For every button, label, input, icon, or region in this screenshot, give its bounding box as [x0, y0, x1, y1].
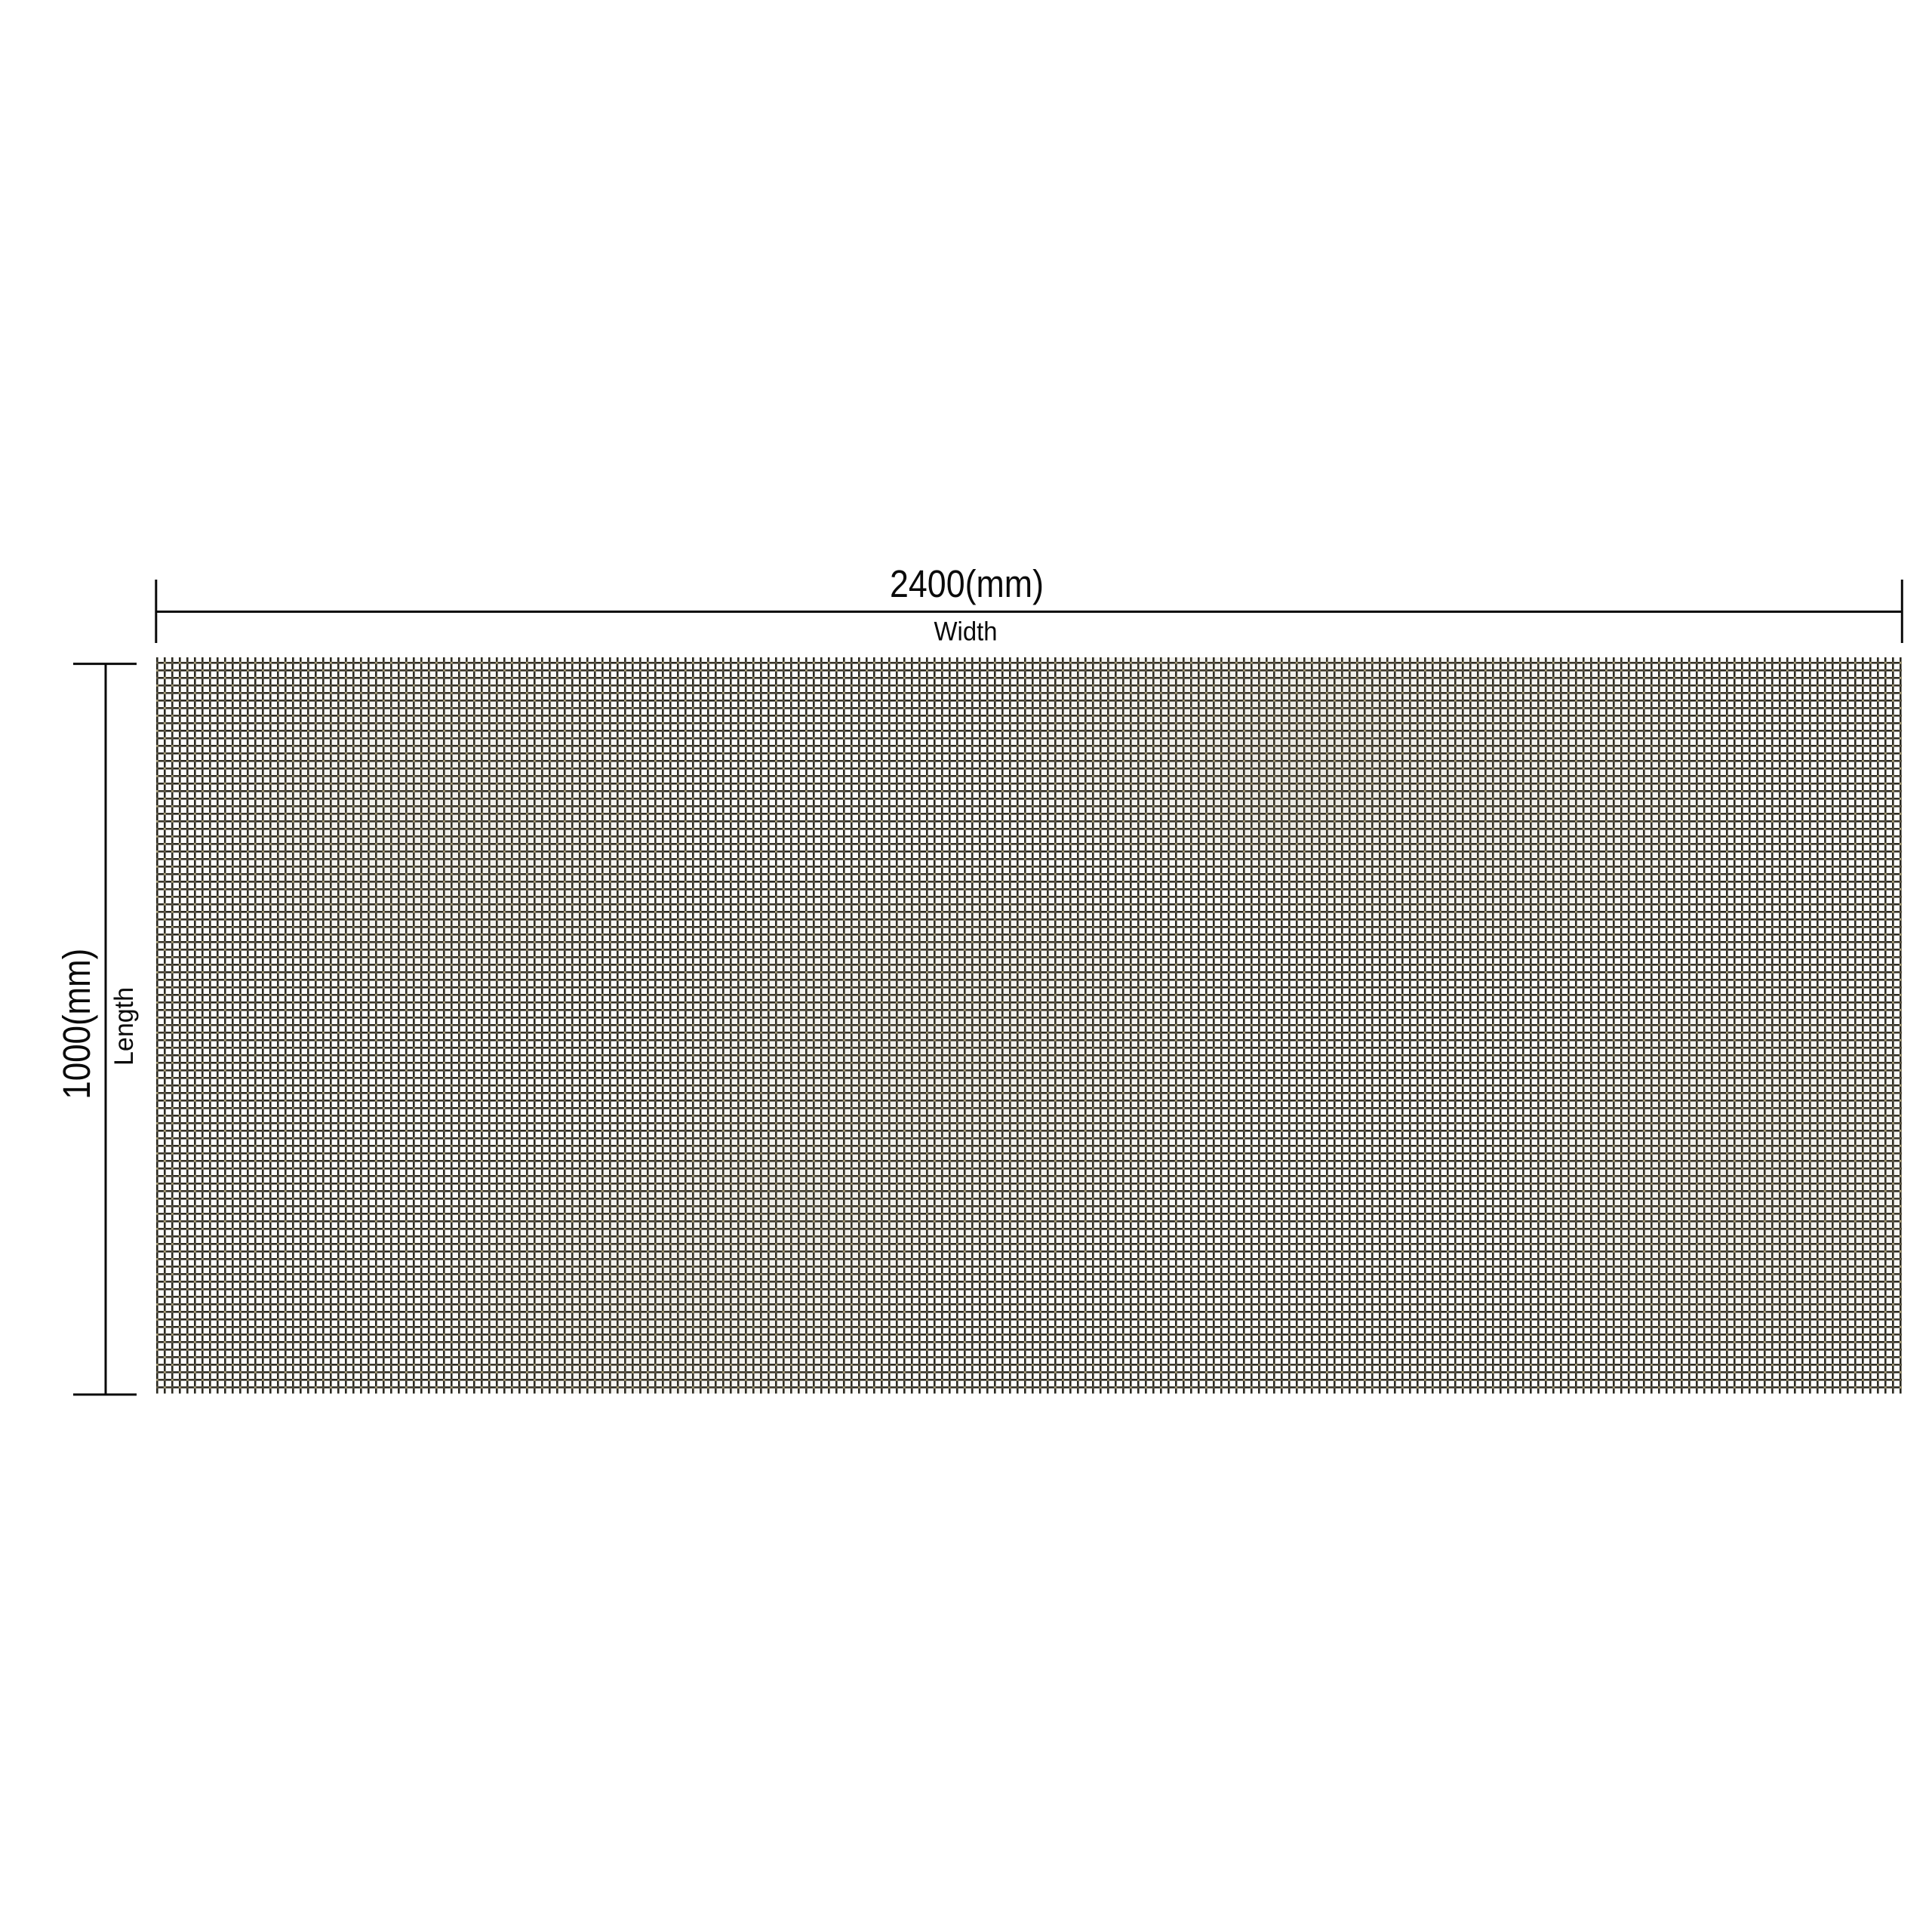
svg-text:1000(mm): 1000(mm): [55, 949, 98, 1100]
svg-text:2400(mm): 2400(mm): [890, 562, 1044, 605]
svg-text:Width: Width: [934, 617, 998, 647]
svg-text:Length: Length: [109, 987, 139, 1066]
